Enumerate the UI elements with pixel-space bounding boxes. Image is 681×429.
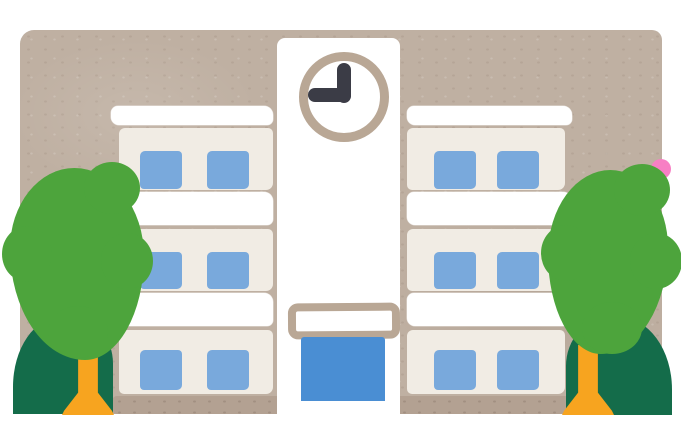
school-window [434,252,476,289]
right-wing-floor-3-wall [407,330,565,394]
clock-hour-hand [308,88,351,102]
canopy-bump [48,306,108,358]
canopy-bump [2,226,52,282]
clock-tower [277,38,400,415]
school-window [207,151,249,189]
school-window [140,350,182,390]
school-window [207,252,249,289]
left-wing-floor-3-wall [119,330,273,394]
canopy-bump [582,302,642,354]
entrance-door [301,337,385,401]
school-window [140,151,182,189]
school-window [434,350,476,390]
school-window [497,350,539,390]
school-window [434,151,476,189]
canopy-bump [630,233,681,289]
canopy-bump [541,225,591,281]
right-wing-floor-1-band [407,106,572,125]
school-window [497,151,539,189]
canopy-bump [84,162,140,214]
school-window [207,350,249,390]
entrance-sign [288,303,400,340]
right-wing-floor-1-wall [407,128,565,190]
left-wing-floor-1-wall [119,128,273,190]
school-window [497,252,539,289]
school-illustration [0,0,681,429]
canopy-bump [101,233,153,289]
left-wing-floor-1-band [111,106,273,125]
clock-icon [299,52,389,142]
right-wing-floor-2-band [407,192,572,225]
right-wing-floor-3-band [407,293,572,326]
